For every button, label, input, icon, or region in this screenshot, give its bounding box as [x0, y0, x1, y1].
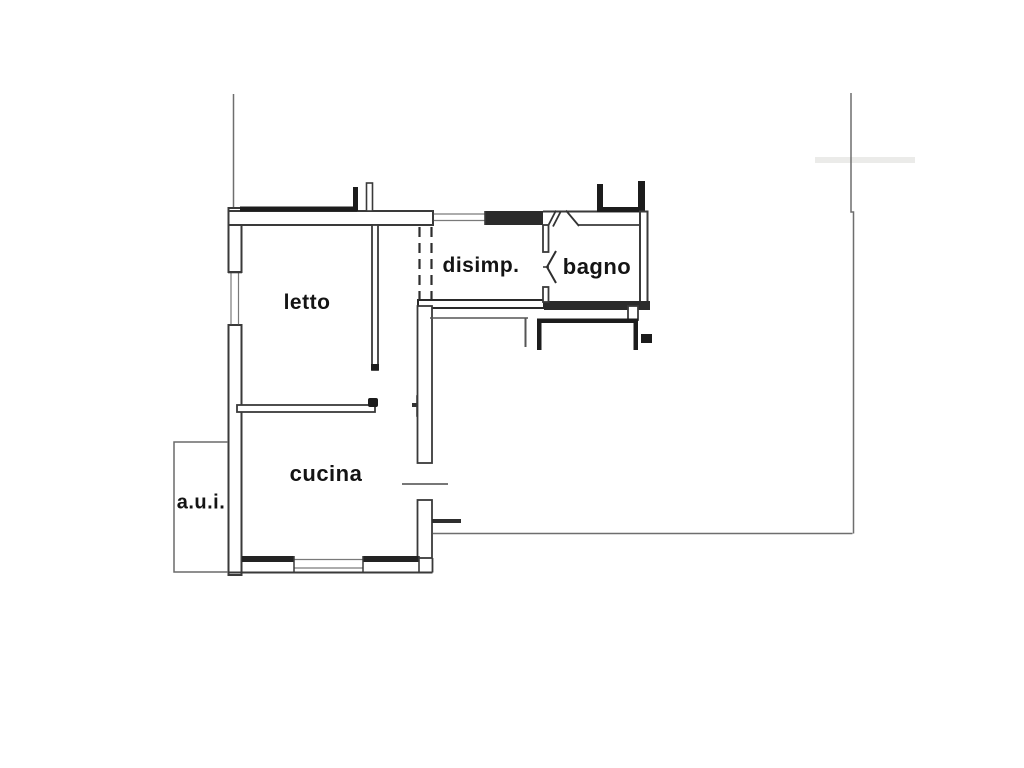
- window-cucina: [294, 556, 363, 572]
- room-label-disimp: disimp.: [442, 254, 519, 278]
- floor-plan-page: letto disimp. bagno cucina a.u.i.: [0, 0, 1024, 768]
- scan-smudge: [815, 157, 915, 163]
- window-top: [433, 211, 485, 225]
- wall-stub-mark: [641, 334, 652, 343]
- balcony-bagno: [537, 319, 652, 351]
- wall-letto-cucina: [237, 396, 421, 416]
- dashed-opening-disimp: [420, 227, 432, 299]
- door-hinge-mark: [368, 398, 378, 407]
- niche-above-bagno: [597, 181, 645, 212]
- room-label-aui: a.u.i.: [177, 492, 226, 515]
- floor-plan-drawing: [0, 0, 1024, 768]
- wall-bottom-disimp-bagno: [418, 300, 650, 320]
- wall-right-bagno: [640, 212, 648, 307]
- wall-left: [229, 208, 242, 575]
- wall-bottom-cucina: [228, 556, 433, 573]
- balcony-top-left: [240, 183, 373, 212]
- room-label-letto: letto: [284, 291, 331, 315]
- pillar: [367, 183, 373, 211]
- partition-letto: [371, 225, 379, 370]
- room-label-cucina: cucina: [290, 461, 363, 487]
- wall-right-cucina: [402, 306, 461, 558]
- door-bagno-swing: [543, 251, 556, 283]
- wall-top: [229, 211, 649, 225]
- window-letto: [228, 273, 242, 326]
- door-entrance: [548, 211, 579, 227]
- partition-disimp-bagno: [543, 225, 549, 302]
- room-label-bagno: bagno: [563, 254, 632, 280]
- terrace-outline: [430, 318, 528, 347]
